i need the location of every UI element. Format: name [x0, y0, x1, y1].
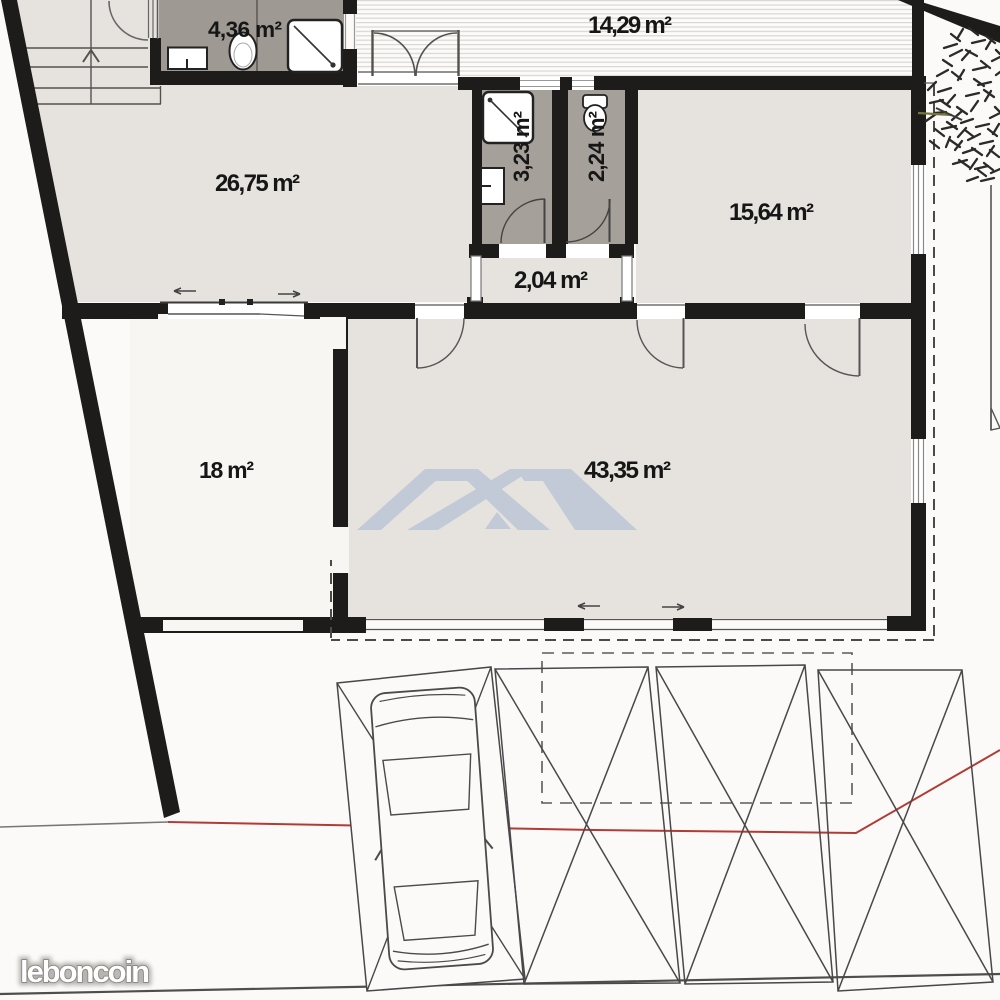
svg-text:43,35 m²: 43,35 m²: [584, 457, 671, 484]
svg-text:2,24 m²: 2,24 m²: [584, 111, 609, 182]
svg-text:15,64 m²: 15,64 m²: [729, 199, 814, 226]
svg-text:26,75 m²: 26,75 m²: [215, 170, 300, 197]
svg-text:leboncoin: leboncoin: [20, 954, 150, 989]
svg-text:2,04 m²: 2,04 m²: [514, 267, 588, 294]
svg-text:14,29 m²: 14,29 m²: [588, 12, 672, 39]
svg-text:4,36 m²: 4,36 m²: [208, 17, 283, 42]
svg-text:3,23 m²: 3,23 m²: [509, 111, 534, 182]
svg-text:18 m²: 18 m²: [199, 457, 254, 483]
